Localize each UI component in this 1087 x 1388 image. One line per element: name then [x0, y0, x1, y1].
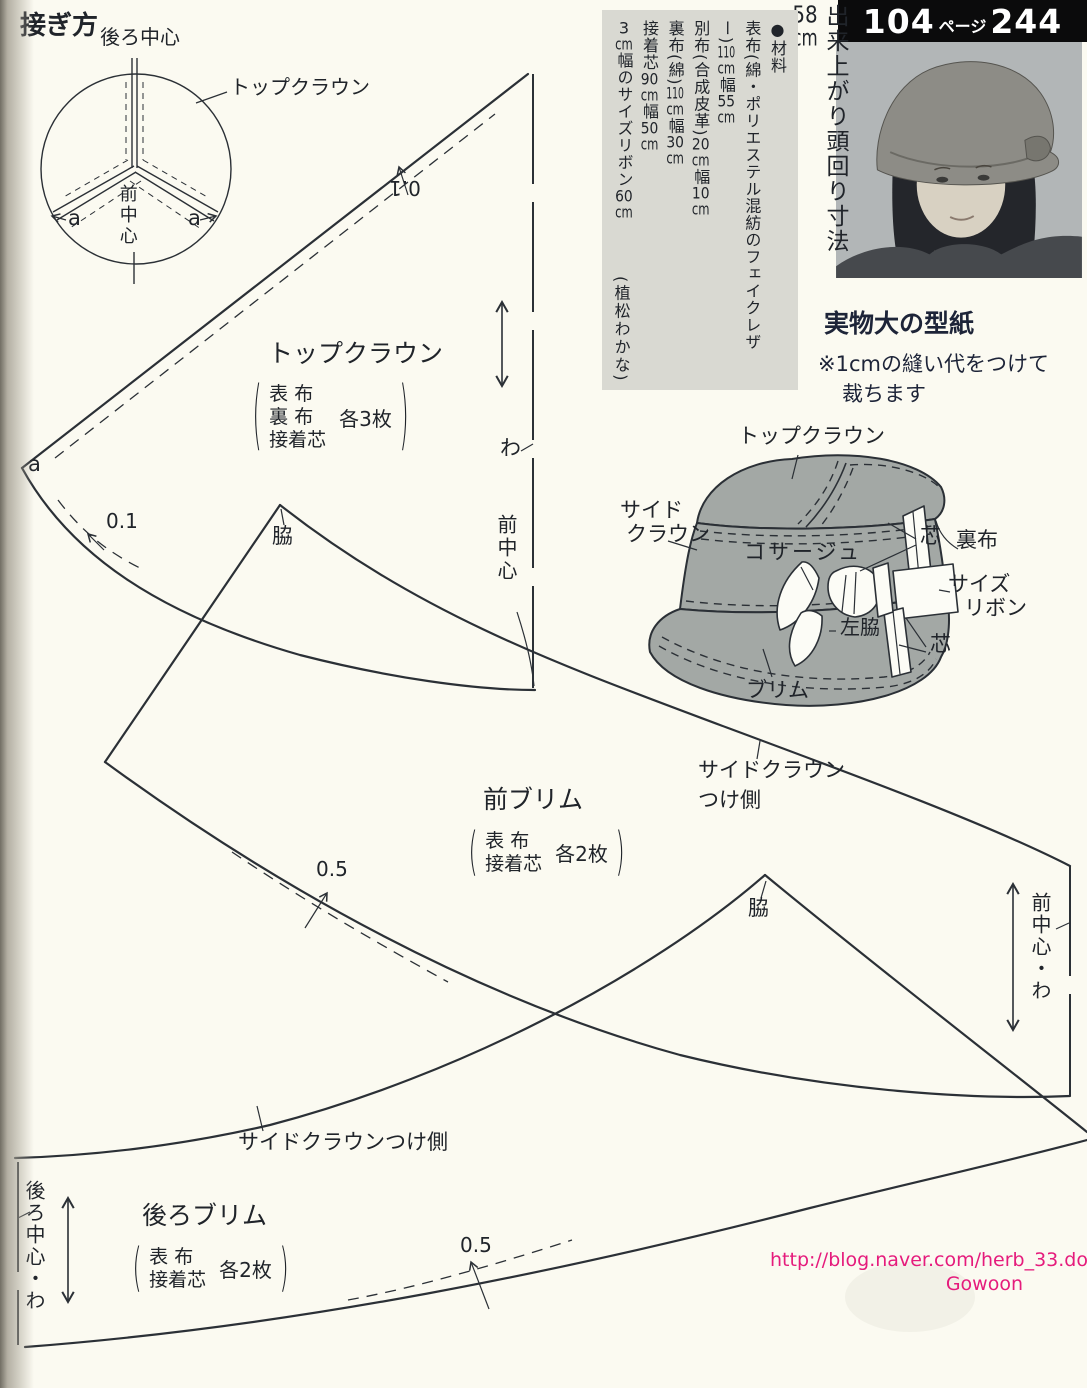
attach-side-label: サイドクラウン	[698, 758, 845, 782]
materials-line: 裏布(綿)110cm幅30cm	[662, 20, 688, 380]
materials-heading: ●材料	[764, 20, 790, 380]
paren-close: )	[398, 374, 411, 461]
join-stitch-dashed	[143, 160, 209, 198]
front-brim-left-edge	[105, 505, 280, 762]
fold-tick	[521, 444, 533, 451]
hat-lining-label: 裏布	[956, 528, 998, 552]
fold-label: わ	[500, 436, 521, 460]
hat-size-ribbon-label: リボン	[964, 596, 1027, 620]
full-size-pattern-title: 実物大の型紙	[824, 310, 974, 339]
hat-interfacing-label: 芯	[920, 524, 941, 548]
paren-close: )	[614, 823, 627, 883]
fold-tick	[1056, 923, 1069, 929]
watermark-signature: Gowoon	[770, 1274, 1023, 1296]
fabric-line: 表 布	[149, 1246, 206, 1269]
model-photo	[836, 42, 1082, 278]
back-brim-outer-edge	[25, 1140, 1087, 1347]
front-brim-piece-title: 前ブリム	[483, 786, 583, 815]
attach-side-label: サイドクラウンつけ側	[238, 1130, 448, 1154]
hat-left-side-label: 左脇	[840, 616, 880, 639]
seam-allowance-0-5: 0.5	[316, 858, 348, 881]
scanned-pattern-page: { "page": { "bg": "#fbfaf1", "ink": "#20…	[0, 0, 1087, 1388]
back-brim-fabric-note: ( 表 布 接着芯 各2枚 )	[130, 1246, 291, 1292]
finished-size-text: 出来上がり頭回り寸法58cm	[792, 4, 852, 294]
hat-size-ribbon-label: サイズ	[948, 572, 1010, 596]
seam-0-1-arrow	[88, 534, 104, 550]
hat-side-crown-label: クラウン	[626, 522, 710, 546]
paren-open: (	[467, 823, 480, 883]
seam-allowance-0-5: 0.5	[460, 1234, 492, 1257]
seam-allowance-note: 裁ちます	[842, 382, 926, 406]
join-right-seam	[135, 172, 214, 221]
front-brim-outer-edge	[105, 762, 1070, 1097]
hat-brim-label: ブリム	[746, 678, 809, 702]
front-brim-crown-edge	[280, 505, 1070, 866]
seam-allowance-0-1: 0.1	[389, 176, 421, 199]
hat-top-crown-label: トップクラウン	[738, 424, 885, 448]
top-crown-label: トップクラウン	[230, 76, 370, 99]
model-photo-drawing	[836, 42, 1082, 278]
fabric-line: 裏 布	[269, 406, 326, 429]
front-brim-fabric-note: ( 表 布 接着芯 各2枚 )	[466, 830, 627, 876]
top-crown-leader	[196, 92, 227, 103]
materials-line: 別布(合成皮革)20cm幅10cm	[688, 20, 714, 380]
designer-credit: (植松わかな)	[608, 276, 634, 382]
hat-side-crown-label: サイド	[620, 498, 683, 522]
front-center-label: 前中心	[116, 184, 137, 247]
page-edge-shadow	[0, 0, 34, 1388]
notch-a-left: a	[68, 206, 81, 230]
fabric-line: 表 布	[485, 830, 542, 853]
fabric-count: 各2枚	[555, 838, 608, 867]
watermark-url: http://blog.naver.com/herb_33.do	[770, 1250, 1087, 1272]
attach-side-label: つけ側	[698, 788, 761, 812]
materials-box: ●材料 表布(綿・ポリエステル混紡のフェイクレザー)110cm幅55cm 別布(…	[602, 10, 798, 390]
top-crown-fabric-note: ( 表 布 裏 布 接着芯 各3枚 )	[250, 383, 411, 451]
model-eye	[936, 177, 948, 183]
front-center-fold-label: 前中心・わ	[1028, 892, 1051, 1002]
materials-line: 接着芯90cm幅50cm	[636, 20, 662, 380]
model-hat-bow	[1025, 136, 1051, 161]
back-center-label: 後ろ中心	[100, 26, 180, 49]
join-right-seam	[137, 166, 218, 212]
back-brim-piece-title: 後ろブリム	[142, 1202, 267, 1231]
fabric-count: 各2枚	[219, 1254, 272, 1283]
paren-open: (	[251, 374, 264, 461]
attach-side-leader	[757, 741, 760, 759]
materials-line: 表布(綿・ポリエステル混紡のフェイクレザー)110cm幅55cm	[713, 20, 764, 380]
side-leader	[281, 509, 284, 525]
notch-a-right: a	[188, 206, 201, 230]
fabric-line: 接着芯	[485, 853, 542, 876]
side-notch-label: 脇	[748, 896, 769, 920]
front-center-label: 前中心	[494, 514, 517, 583]
seam-allowance-note: ※1cmの縫い代をつけて	[818, 352, 1049, 376]
seam-allowance-0-1: 0.1	[106, 510, 138, 533]
paren-open: (	[131, 1239, 144, 1299]
back-brim-crown-edge	[15, 875, 765, 1158]
paren-close: )	[278, 1239, 291, 1299]
hat-interfacing-label: 芯	[930, 632, 951, 656]
fabric-line: 表 布	[269, 383, 326, 406]
page-number: 104	[863, 2, 935, 41]
page-reference-bar: 104 ページ 244	[838, 0, 1087, 42]
page-word: ページ	[938, 5, 988, 37]
top-crown-bottom-edge	[22, 468, 535, 690]
hat-corsage-label: コサージュ	[744, 540, 862, 564]
model-eye	[978, 175, 990, 181]
item-number: 244	[990, 2, 1062, 41]
fabric-line: 接着芯	[269, 429, 326, 452]
fabric-count: 各3枚	[339, 403, 392, 432]
fabric-line: 接着芯	[149, 1269, 206, 1292]
side-notch-label: 脇	[272, 524, 293, 548]
top-crown-piece-title: トップクラウン	[268, 340, 443, 369]
